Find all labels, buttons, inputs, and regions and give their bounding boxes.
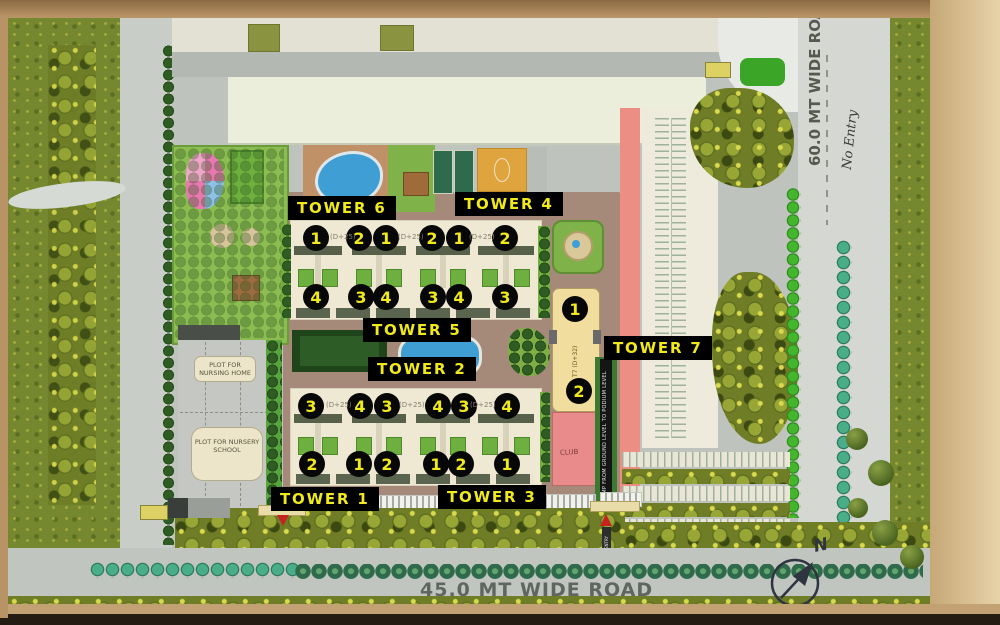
tower1-label: TOWER 1 — [271, 487, 379, 511]
lane-marking — [826, 55, 828, 225]
deck-structure — [527, 147, 547, 195]
floor-note: (D+25) — [330, 233, 356, 241]
nursery-school-plot-label: PLOT FOR NURSERY SCHOOL — [191, 427, 263, 481]
plot-hedge — [266, 340, 282, 508]
frame-top — [0, 0, 1000, 18]
tree — [846, 428, 868, 450]
unit-badge: 1 — [373, 225, 399, 251]
tennis-court — [433, 150, 453, 194]
tower7-core-tab — [593, 330, 601, 344]
unit-badge: 4 — [494, 393, 520, 419]
unit-badge: 2 — [566, 378, 592, 404]
block-hedge — [538, 226, 550, 318]
car — [140, 505, 168, 520]
unit-badge: 1 — [346, 451, 372, 477]
gate-entry-label: ENTRY — [604, 529, 609, 549]
gatehouse — [168, 498, 230, 518]
fountain-water — [572, 240, 580, 248]
salmon-building — [620, 108, 640, 504]
road-median-hedge — [836, 240, 852, 530]
utility-structure — [380, 25, 414, 51]
unit-badge: 4 — [425, 393, 451, 419]
compass-north-label: N — [812, 534, 830, 557]
bottom-tree-belt — [175, 508, 625, 550]
roof-strip — [296, 308, 534, 318]
unit-badge: 4 — [373, 284, 399, 310]
utility-structure — [248, 24, 280, 52]
unit-badge: 3 — [374, 393, 400, 419]
road-median-hedge — [90, 562, 300, 578]
parking-row — [622, 486, 790, 501]
tower6-label: TOWER 6 — [288, 196, 396, 220]
floor-note: (D+25) — [398, 233, 424, 241]
tower7-core-tab — [549, 330, 557, 344]
tennis-court — [454, 150, 474, 194]
frame-bottom-edge — [0, 614, 1000, 625]
floor-note: (D+25) — [469, 233, 495, 241]
floor-note: (D+25) — [470, 401, 496, 409]
roof-strip — [296, 474, 534, 484]
central-garden — [508, 328, 550, 376]
unit-badge: 2 — [448, 451, 474, 477]
gate-bar — [590, 501, 640, 512]
parking-trees — [622, 469, 790, 484]
nursing-home-plot-label: PLOT FOR NURSING HOME — [194, 356, 256, 382]
tree — [900, 545, 924, 569]
unit-badge: 4 — [446, 284, 472, 310]
floor-note: (D+25) — [399, 401, 425, 409]
parking-row — [622, 452, 790, 467]
tower7-core-label: T7 (D+32) — [572, 325, 579, 377]
tower5-label: TOWER 5 — [363, 318, 471, 342]
frame-left — [0, 18, 8, 618]
tower3-label: TOWER 3 — [438, 485, 546, 509]
unit-badge: 2 — [492, 225, 518, 251]
unit-badge: 3 — [420, 284, 446, 310]
parking-bays — [655, 118, 669, 438]
site-plan: 60.0 MT WIDE ROAD No Entry PLOT FOR NURS… — [0, 0, 1000, 625]
lawn-patch — [740, 58, 785, 86]
parking-trees — [622, 503, 790, 517]
unit-badge: 4 — [303, 284, 329, 310]
block-hedge — [281, 224, 291, 318]
right-green-field — [890, 18, 930, 596]
unit-badge: 1 — [423, 451, 449, 477]
tree — [848, 498, 868, 518]
garden-trees — [174, 148, 284, 338]
unit-badge: 3 — [298, 393, 324, 419]
tree — [868, 460, 894, 486]
unit-badge: 2 — [374, 451, 400, 477]
gate-arrow-down — [277, 515, 289, 526]
frame-right — [930, 0, 1000, 625]
court-marking — [494, 158, 510, 182]
lawn-pavilion — [403, 172, 429, 196]
block-hedge — [540, 392, 550, 482]
unit-badge: 1 — [562, 296, 588, 322]
top-service-road — [172, 52, 732, 77]
left-tree-row — [48, 45, 96, 505]
tower2-label: TOWER 2 — [368, 357, 476, 381]
unit-badge: 1 — [303, 225, 329, 251]
car — [705, 62, 731, 78]
tower7-label: TOWER 7 — [604, 336, 712, 360]
gate-arrow-up — [600, 514, 612, 526]
unit-badge: 3 — [492, 284, 518, 310]
tree — [872, 520, 898, 546]
unit-badge: 3 — [348, 284, 374, 310]
plot-line — [180, 412, 278, 413]
parking-bays — [671, 118, 686, 438]
ramp-label: RAMP FROM GROUND LEVEL TO PODIUM LEVEL — [602, 363, 608, 501]
tower4-label: TOWER 4 — [455, 192, 563, 216]
unit-badge: 2 — [299, 451, 325, 477]
unit-badge: 1 — [494, 451, 520, 477]
floor-note: (D+25) — [326, 401, 352, 409]
right-road-label: 60.0 MT WIDE ROAD — [806, 14, 824, 166]
